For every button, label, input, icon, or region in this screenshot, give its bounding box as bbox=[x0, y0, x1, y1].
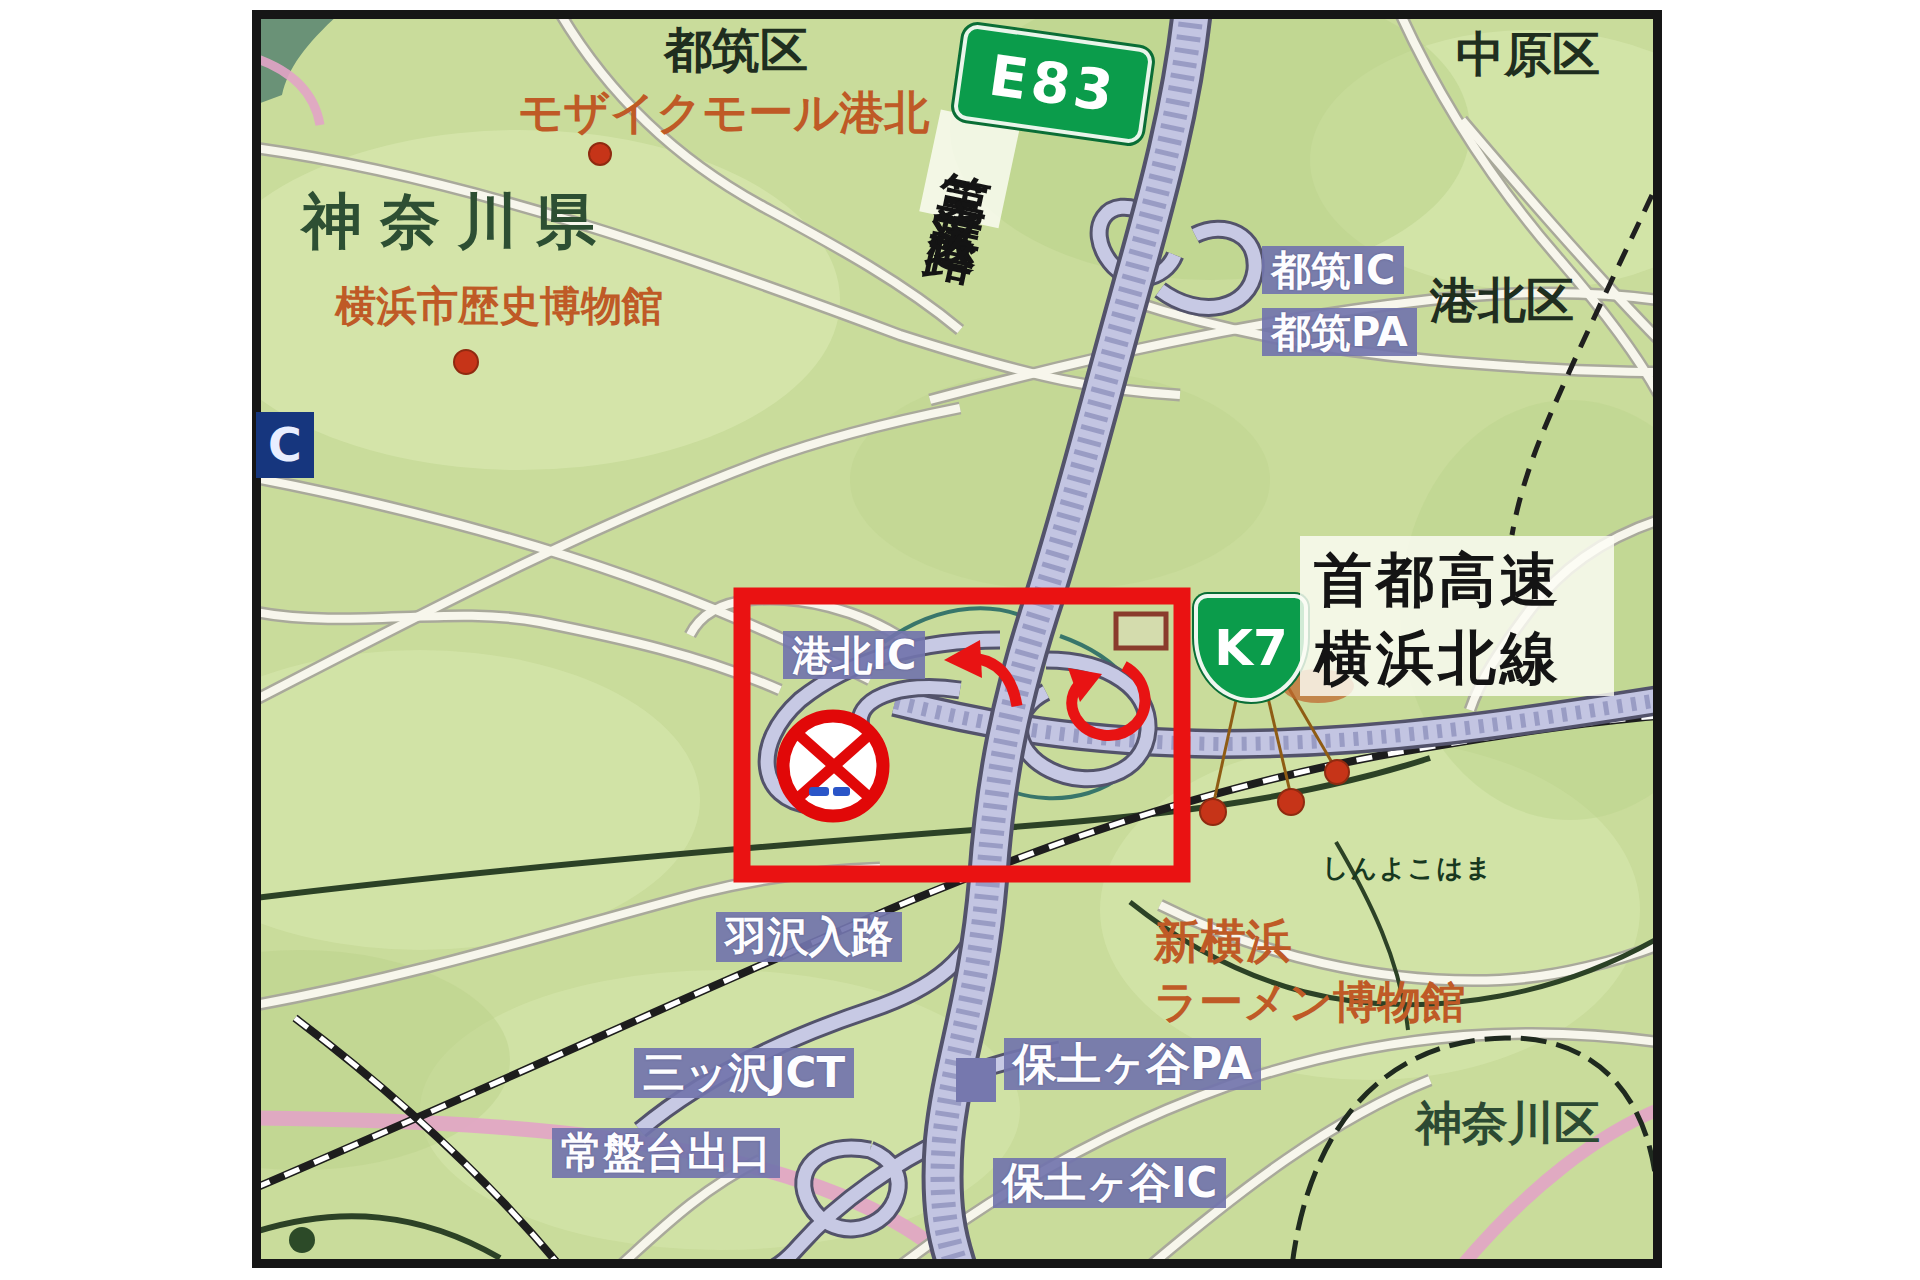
label-tsuzuki-ic: 都筑IC bbox=[1262, 246, 1404, 294]
label-mitsuzawa-jct: 三ッ沢JCT bbox=[634, 1048, 854, 1098]
label-shuto-line1: 首都高速 bbox=[1314, 542, 1562, 620]
label-kanagawa-prefecture: 神奈川県 bbox=[302, 188, 614, 254]
map-screenshot: 第三京浜道路 E83 K7 首都高速 横浜北線 都筑区 中原区 港北区 神奈川区… bbox=[0, 0, 1920, 1280]
label-kohoku-ward: 港北区 bbox=[1430, 274, 1574, 327]
label-tsuzuki-ward: 都筑区 bbox=[664, 24, 808, 77]
label-shuto-line2: 横浜北線 bbox=[1314, 620, 1562, 698]
label-shin-yokohama-station: しんよこはま bbox=[1322, 854, 1494, 883]
label-hodogaya-ic: 保土ヶ谷IC bbox=[993, 1158, 1226, 1208]
label-shin-yokohama: 新横浜 bbox=[1154, 916, 1292, 967]
label-tokiwadai-exit: 常盤台出口 bbox=[552, 1128, 780, 1178]
park-blob bbox=[289, 1227, 315, 1253]
label-tsuzuki-pa: 都筑PA bbox=[1262, 308, 1417, 356]
label-hodogaya-pa: 保土ヶ谷PA bbox=[1004, 1038, 1261, 1090]
label-kanagawa-ward: 神奈川区 bbox=[1416, 1098, 1600, 1149]
edge-ic-label: C bbox=[256, 412, 314, 478]
label-mosaic-mall: モザイクモール港北 bbox=[518, 88, 929, 138]
label-kohoku-ic: 港北IC bbox=[783, 631, 925, 679]
label-history-museum: 横浜市歴史博物館 bbox=[335, 284, 663, 329]
no-entry-sign bbox=[783, 716, 883, 816]
pa-block bbox=[956, 1058, 996, 1102]
label-ramen-museum: ラーメン博物館 bbox=[1154, 978, 1465, 1026]
label-hazawa-entry: 羽沢入路 bbox=[716, 912, 902, 962]
building-outline bbox=[1116, 614, 1166, 648]
label-nakahara-ward: 中原区 bbox=[1456, 28, 1600, 81]
shuto-expressway-panel: 首都高速 横浜北線 bbox=[1300, 536, 1614, 696]
